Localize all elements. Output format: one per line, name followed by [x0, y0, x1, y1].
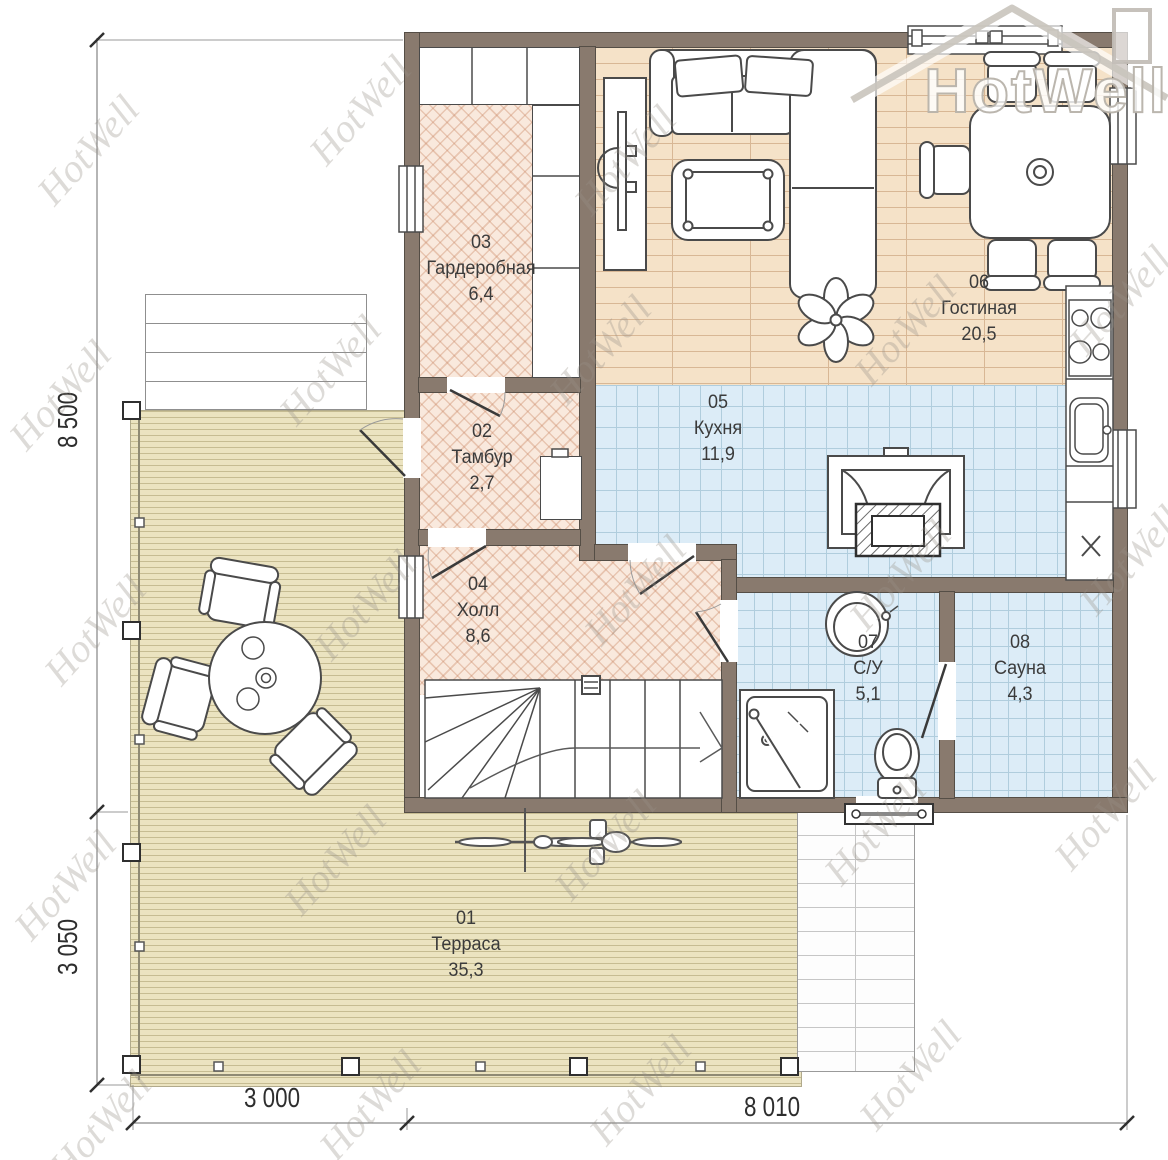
- dimension-left-top: 8 500: [52, 392, 84, 448]
- room-number: 01: [431, 906, 500, 932]
- room-label-sauna: 08 Сауна 4,3: [994, 630, 1046, 708]
- room-area: 20,5: [941, 322, 1017, 348]
- cooktop: [1069, 300, 1111, 376]
- room-name: Сауна: [994, 656, 1046, 682]
- room-area: 6,4: [426, 282, 535, 308]
- room-area: 4,3: [994, 682, 1046, 708]
- room-number: 04: [457, 572, 500, 598]
- plan-drawing-layer: [0, 0, 1168, 1160]
- room-number: 03: [426, 230, 535, 256]
- room-name: Кухня: [694, 416, 742, 442]
- terrace-table-set: [139, 556, 363, 801]
- kitchen-island: [828, 448, 964, 556]
- room-label-hall: 04 Холл 8,6: [457, 572, 500, 650]
- brand-logo-text: HotWell: [924, 56, 1168, 127]
- room-label-bathroom: 07 С/У 5,1: [853, 630, 883, 708]
- room-label-terrace: 01 Терраса 35,3: [431, 906, 500, 984]
- room-area: 35,3: [431, 958, 500, 984]
- room-number: 08: [994, 630, 1046, 656]
- coffee-table: [672, 160, 784, 240]
- toilet: [875, 729, 919, 798]
- dimension-bottom-left: 3 000: [244, 1082, 300, 1114]
- room-label-kitchen: 05 Кухня 11,9: [694, 390, 742, 468]
- sauna-threshold: [845, 804, 933, 824]
- dimension-left-bottom: 3 050: [52, 919, 84, 975]
- tv-stand: [598, 78, 646, 270]
- room-area: 2,7: [451, 471, 512, 497]
- kitchen-sink: [1070, 398, 1111, 462]
- room-name: Гостиная: [941, 296, 1017, 322]
- room-area: 8,6: [457, 624, 500, 650]
- shower-tray: [740, 690, 834, 798]
- floor-plan-canvas: 03 Гардеробная 6,4 02 Тамбур 2,7 04 Холл…: [0, 0, 1168, 1160]
- room-name: Гардеробная: [426, 256, 535, 282]
- bicycles: [455, 808, 682, 872]
- room-name: С/У: [853, 656, 883, 682]
- room-name: Холл: [457, 598, 500, 624]
- room-label-vestibule: 02 Тамбур 2,7: [451, 419, 512, 497]
- room-number: 02: [451, 419, 512, 445]
- room-area: 5,1: [853, 682, 883, 708]
- room-name: Тамбур: [451, 445, 512, 471]
- room-name: Терраса: [431, 932, 500, 958]
- staircase: [425, 676, 722, 798]
- room-area: 11,9: [694, 442, 742, 468]
- dimension-bottom-right: 8 010: [744, 1091, 800, 1123]
- room-label-wardrobe: 03 Гардеробная 6,4: [426, 230, 535, 308]
- room-number: 07: [853, 630, 883, 656]
- kitchen-counter: [1066, 286, 1113, 580]
- room-number: 05: [694, 390, 742, 416]
- room-label-living-room: 06 Гостиная 20,5: [941, 270, 1017, 348]
- room-number: 06: [941, 270, 1017, 296]
